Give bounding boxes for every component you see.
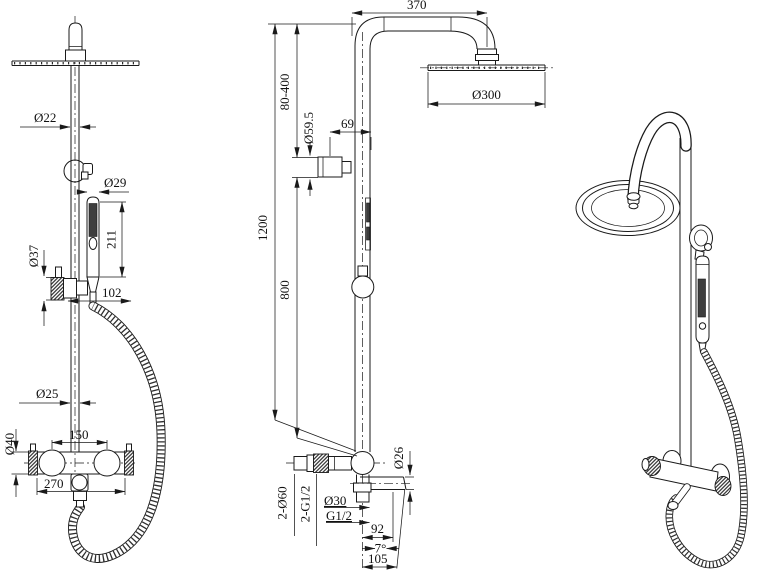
dim-holder-depth: 69: [341, 116, 354, 131]
dim-arm-reach: 370: [407, 0, 427, 12]
dim-outlet-diameter: Ø30: [324, 493, 346, 508]
dim-handle-centers: 150: [69, 427, 89, 442]
dim-outlet-thread: G1/2: [326, 508, 352, 523]
side-valve-knurled-handle: [314, 454, 329, 473]
front-valve-right-handle: [94, 450, 120, 476]
persp-valve-right-handle: [715, 477, 731, 496]
dim-hand-shower-diameter: Ø29: [104, 175, 126, 190]
persp-riser-fill: [680, 138, 691, 468]
dim-spout-reach: 92: [371, 521, 384, 536]
dim-hand-shower-length: 211: [104, 230, 119, 249]
dim-hand-offset: 102: [102, 285, 122, 300]
dim-spout-reach-total: 105: [368, 551, 388, 566]
dim-valve-width: 270: [44, 476, 64, 491]
dim-total-height: 1200: [255, 215, 270, 241]
dim-slider-diameter: Ø37: [26, 244, 41, 267]
front-diverter-knob: [72, 475, 87, 490]
dim-holder-diameter: Ø59.5: [301, 112, 316, 144]
dim-pipe-diameter: Ø22: [34, 110, 56, 125]
dim-escutcheon: 2-Ø60: [275, 486, 290, 519]
dim-spout-diameter: Ø26: [391, 446, 406, 469]
persp-hand-shower-wand: [696, 256, 709, 352]
dim-head-diameter: Ø300: [472, 87, 501, 102]
dim-riser-diameter: Ø25: [36, 386, 58, 401]
technical-drawing-canvas: Ø22 Ø29 211 Ø37 102 Ø25 150 Ø40: [0, 0, 762, 572]
dim-adjust-range: 80-400: [277, 74, 292, 111]
dim-inlet-thread: 2-G1/2: [298, 486, 313, 523]
front-hand-shower-wand: [87, 197, 99, 277]
front-valve-left-handle: [39, 450, 65, 476]
dim-lower-height: 800: [277, 280, 292, 300]
front-slider-knurled-knob: [51, 278, 64, 301]
dim-valve-diameter: Ø40: [2, 433, 17, 455]
